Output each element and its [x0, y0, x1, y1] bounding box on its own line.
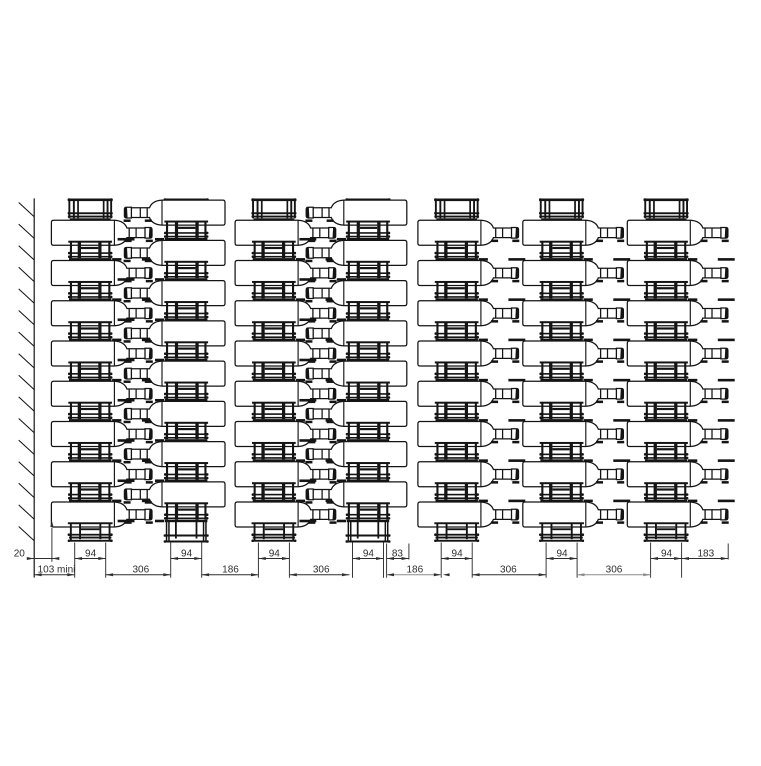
- svg-text:183: 183: [697, 548, 714, 559]
- svg-text:306: 306: [313, 565, 330, 576]
- svg-text:306: 306: [500, 565, 517, 576]
- svg-text:83: 83: [392, 548, 404, 559]
- svg-text:94: 94: [556, 548, 568, 559]
- svg-text:94: 94: [181, 548, 193, 559]
- svg-text:94: 94: [363, 548, 375, 559]
- svg-text:306: 306: [606, 565, 623, 576]
- svg-text:103 mini: 103 mini: [38, 565, 76, 576]
- svg-text:94: 94: [85, 548, 97, 559]
- svg-text:94: 94: [661, 548, 673, 559]
- svg-text:186: 186: [406, 565, 423, 576]
- svg-text:20: 20: [14, 548, 26, 559]
- svg-text:306: 306: [132, 565, 149, 576]
- svg-text:94: 94: [452, 548, 464, 559]
- svg-text:186: 186: [222, 565, 239, 576]
- svg-text:94: 94: [269, 548, 281, 559]
